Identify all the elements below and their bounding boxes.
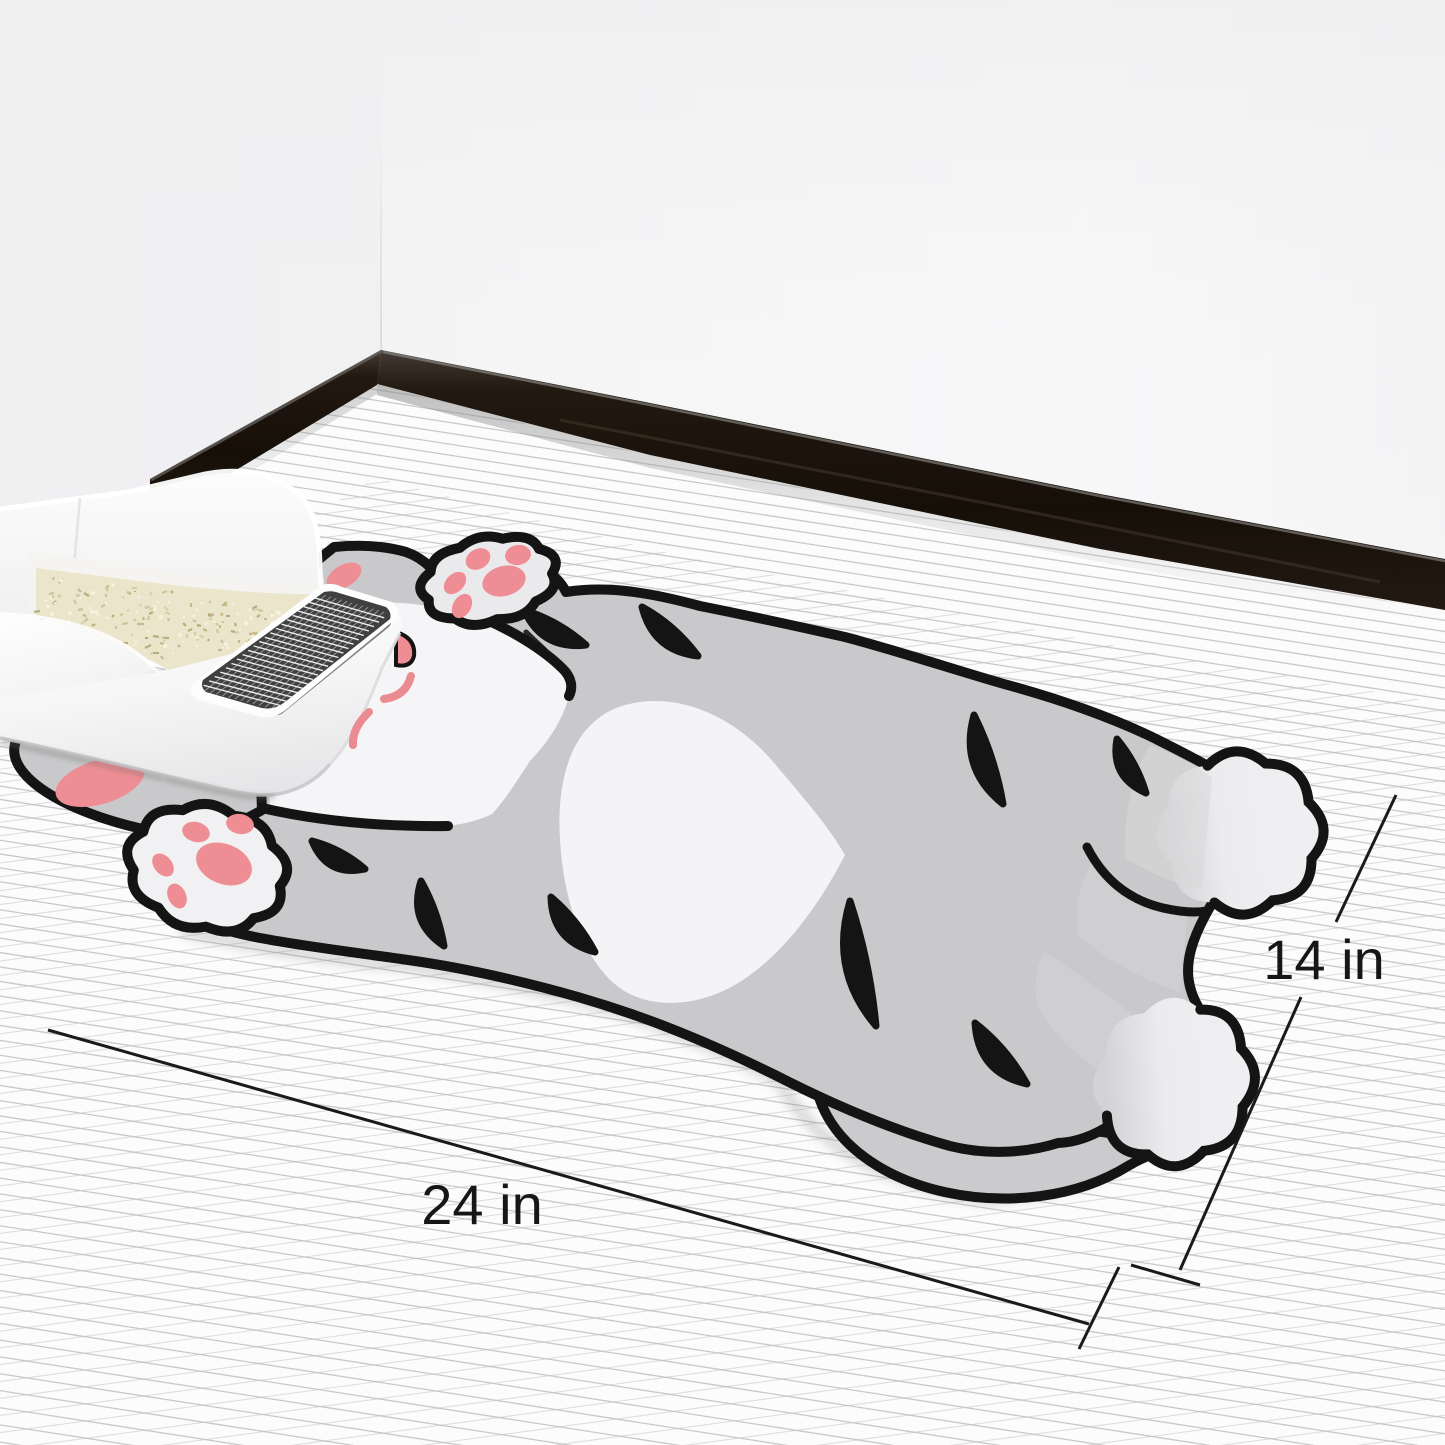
svg-text:24 in: 24 in xyxy=(421,1173,542,1236)
svg-text:14 in: 14 in xyxy=(1263,928,1384,991)
